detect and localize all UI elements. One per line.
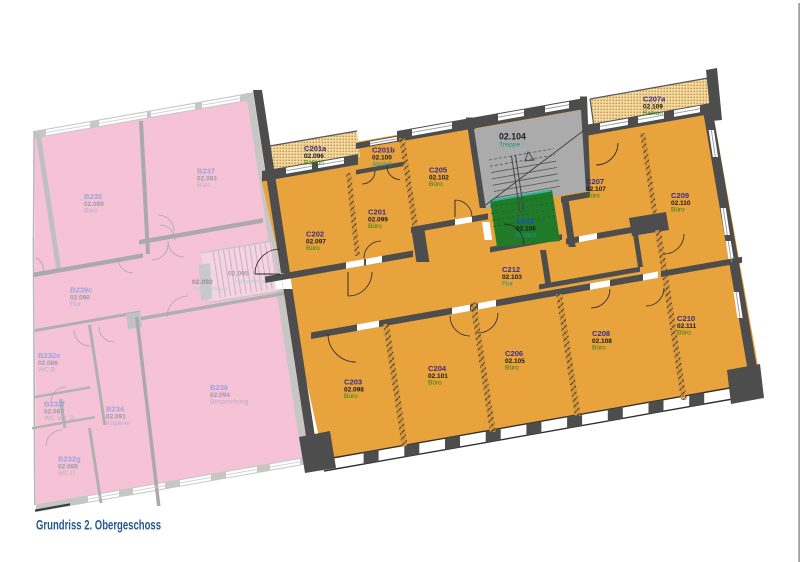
svg-text:Büro: Büro <box>677 330 691 337</box>
svg-text:C207a: C207a <box>643 95 666 104</box>
svg-text:B236: B236 <box>210 383 228 392</box>
svg-text:Treppenhaus: Treppenhaus <box>232 279 266 285</box>
svg-text:Kopierer: Kopierer <box>106 420 131 427</box>
svg-text:Büro: Büro <box>592 345 606 352</box>
svg-text:Büro: Büro <box>671 207 685 214</box>
svg-text:Grundriss 2. Obergeschoss: Grundriss 2. Obergeschoss <box>36 518 161 534</box>
svg-text:B235: B235 <box>84 192 103 201</box>
svg-text:C204: C204 <box>428 364 447 373</box>
svg-text:C212: C212 <box>516 217 534 226</box>
svg-text:B234: B234 <box>106 405 125 414</box>
svg-text:02.104: 02.104 <box>499 132 526 142</box>
svg-text:Büro: Büro <box>429 181 443 188</box>
svg-text:C209: C209 <box>671 191 689 200</box>
svg-text:Büro: Büro <box>428 380 442 387</box>
svg-text:Büro: Büro <box>306 245 320 252</box>
svg-text:C206: C206 <box>505 349 523 358</box>
svg-text:Treppe: Treppe <box>499 142 521 149</box>
svg-text:02.095: 02.095 <box>228 271 249 278</box>
svg-text:Balkon: Balkon <box>643 110 663 117</box>
svg-text:C201: C201 <box>368 208 387 217</box>
svg-text:Treppenhaus: Treppenhaus <box>193 287 227 293</box>
svg-text:Balkon: Balkon <box>304 160 324 167</box>
svg-text:Büro: Büro <box>368 223 382 230</box>
svg-text:Büro: Büro <box>197 182 211 189</box>
svg-text:C202: C202 <box>306 230 324 239</box>
svg-text:Flur: Flur <box>502 281 514 288</box>
svg-text:B237: B237 <box>197 167 215 176</box>
svg-text:Podest: Podest <box>516 232 536 239</box>
svg-text:C205: C205 <box>429 166 448 175</box>
svg-text:C203: C203 <box>344 378 362 387</box>
svg-text:C207: C207 <box>586 177 604 186</box>
svg-text:Flur: Flur <box>70 301 82 308</box>
svg-text:C208: C208 <box>592 329 610 338</box>
svg-text:Büro: Büro <box>344 393 358 400</box>
svg-text:WC Vor. D: WC Vor. D <box>44 415 75 422</box>
svg-text:B239c: B239c <box>70 286 92 295</box>
svg-text:WC D: WC D <box>58 470 76 477</box>
svg-text:WC B: WC B <box>38 367 55 374</box>
svg-text:B232e: B232e <box>38 351 60 360</box>
svg-text:C201a: C201a <box>304 144 327 153</box>
svg-text:Büro: Büro <box>84 208 98 215</box>
svg-text:C210: C210 <box>677 314 695 323</box>
svg-text:Büro: Büro <box>505 365 519 372</box>
svg-text:B232g: B232g <box>58 455 81 464</box>
svg-text:02.092: 02.092 <box>192 279 213 286</box>
svg-text:Abstell: Abstell <box>372 161 392 168</box>
svg-text:C212: C212 <box>502 265 520 274</box>
svg-text:C201b: C201b <box>372 146 395 155</box>
svg-text:Büro: Büro <box>586 193 600 200</box>
svg-text:B232f: B232f <box>44 400 65 409</box>
svg-text:Besprechung: Besprechung <box>210 399 249 406</box>
